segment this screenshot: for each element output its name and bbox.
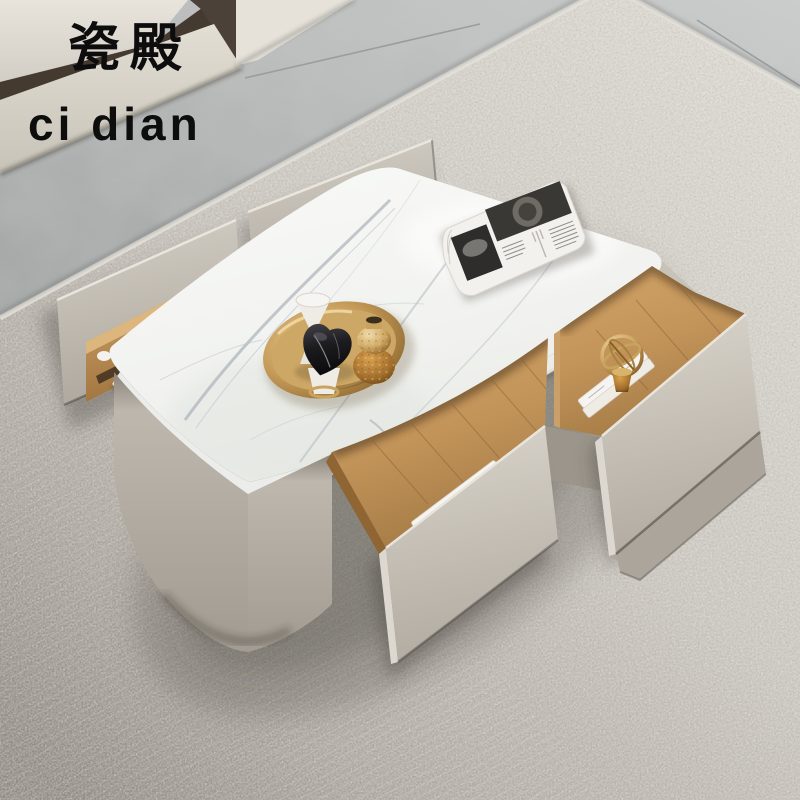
brand-pinyin: ci dian bbox=[28, 98, 202, 150]
drawer-bumper bbox=[97, 351, 111, 361]
scene-svg: A bbox=[0, 0, 800, 800]
hourglass-top bbox=[296, 293, 330, 307]
vase-texture bbox=[357, 326, 391, 354]
brand-chinese: 瓷殿 bbox=[68, 20, 192, 78]
product-photo: A bbox=[0, 0, 800, 800]
vase-opening bbox=[366, 317, 382, 324]
drawer-partition bbox=[554, 330, 560, 428]
armillary-base-top bbox=[612, 368, 632, 376]
